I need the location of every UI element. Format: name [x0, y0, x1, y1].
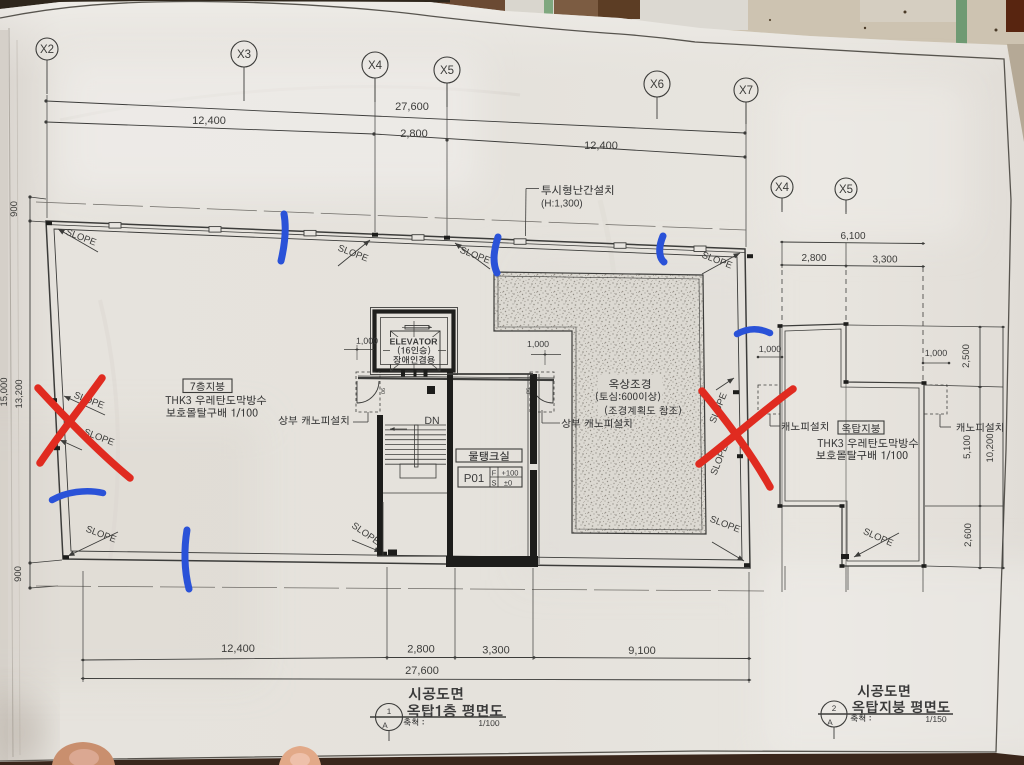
svg-text:X4: X4	[775, 182, 790, 194]
svg-text:X7: X7	[739, 85, 753, 97]
svg-text:3,300: 3,300	[482, 645, 510, 657]
svg-text:2,800: 2,800	[407, 644, 435, 656]
svg-text:6,100: 6,100	[840, 231, 865, 242]
svg-text:27,600: 27,600	[405, 665, 439, 677]
svg-text:12,400: 12,400	[584, 140, 618, 152]
svg-text:12,400: 12,400	[221, 643, 255, 655]
svg-text:2,800: 2,800	[801, 253, 826, 264]
svg-text:X3: X3	[237, 49, 251, 61]
svg-text:2,800: 2,800	[400, 128, 428, 140]
svg-text:9,100: 9,100	[628, 645, 656, 657]
svg-text:X2: X2	[40, 44, 54, 56]
svg-text:X5: X5	[440, 65, 454, 77]
svg-text:X5: X5	[839, 184, 853, 196]
svg-text:X4: X4	[368, 60, 383, 72]
svg-text:27,600: 27,600	[395, 101, 429, 113]
svg-text:12,400: 12,400	[192, 115, 226, 127]
svg-text:X6: X6	[650, 79, 664, 91]
svg-text:3,300: 3,300	[872, 255, 897, 266]
